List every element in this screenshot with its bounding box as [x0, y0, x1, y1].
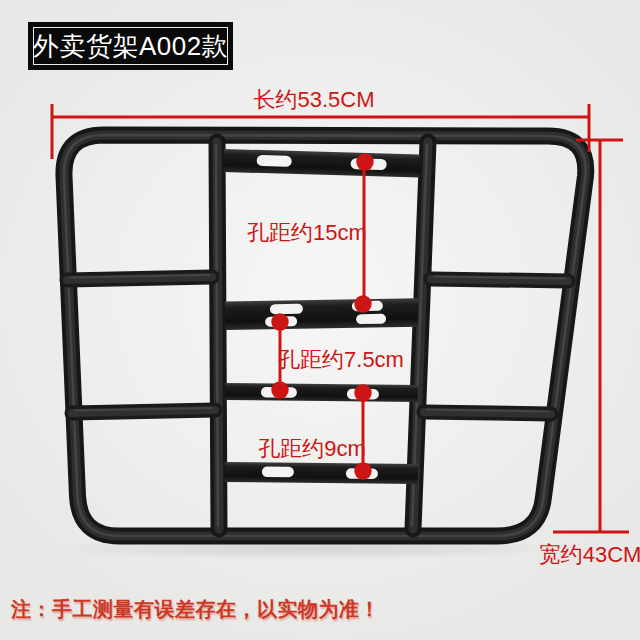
width-dimension-label: 宽约43CM [539, 542, 640, 567]
hole-spacing-9-label: 孔距约9cm [258, 436, 366, 461]
model-badge-label: 外卖货架A002款 [33, 29, 228, 64]
slot-hole [262, 466, 294, 477]
slot-hole [270, 304, 303, 315]
hole-spacing-7-5-label: 孔距约7.5cm [278, 347, 404, 372]
slot-hole [356, 314, 386, 325]
hole-spacing-15-label: 孔距约15cm [247, 220, 367, 245]
mounting-plates [223, 149, 420, 484]
product-image-canvas: 外卖货架A002款 长约53.5CM 孔距约15cm 孔距约7.5cm 孔距约9… [0, 0, 640, 640]
hole-spacing-9-line [354, 384, 371, 479]
slot-hole [257, 155, 292, 167]
measurement-note: 注：手工测量有误差存在，以实物为准！ [11, 596, 380, 623]
length-dimension-label: 长约53.5CM [253, 87, 374, 112]
model-badge: 外卖货架A002款 [28, 22, 233, 70]
